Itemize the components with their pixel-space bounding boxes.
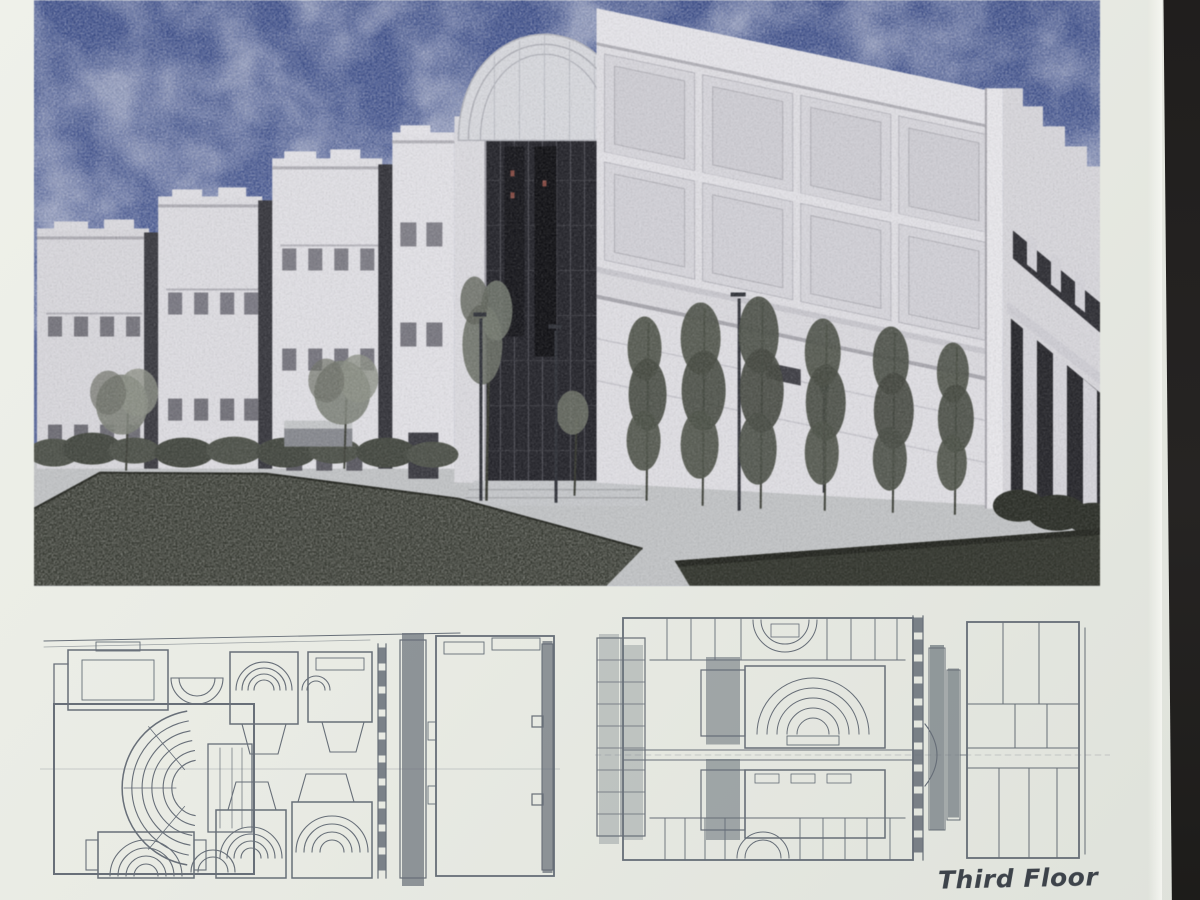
plan-caption: Third Floor [938,862,1099,894]
building-rendering-photo [34,0,1100,586]
building-rendering [34,0,1100,586]
print-grain-light [34,0,1100,586]
floor-plan-right [595,608,1110,890]
page-edge-highlight [1148,0,1162,900]
floor-plan-left [40,626,560,886]
dark-table-backdrop [1158,0,1200,900]
photographed-document-page: Third Floor [0,0,1200,900]
